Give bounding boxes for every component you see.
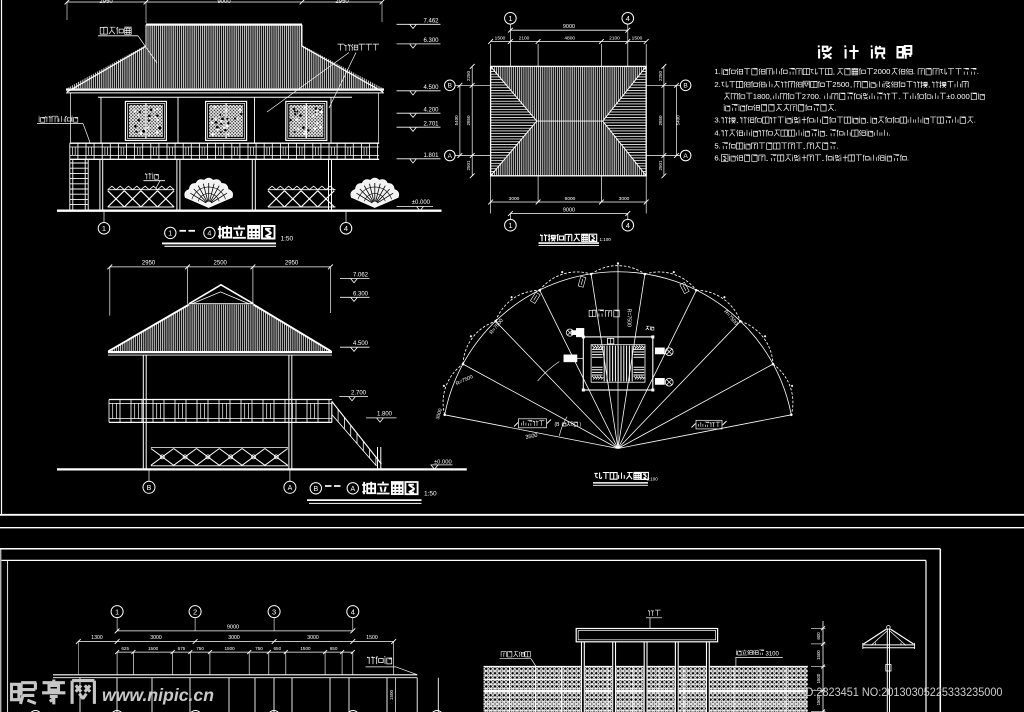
svg-text:B: B (147, 485, 152, 492)
svg-text:1:50: 1:50 (424, 491, 437, 498)
svg-text:2950: 2950 (335, 0, 349, 5)
svg-text:ID:2823451 NO:2013030522533323: ID:2823451 NO:20130305225333235000 (803, 687, 1003, 699)
svg-text:9000: 9000 (227, 625, 239, 631)
svg-text:R=7500: R=7500 (626, 309, 632, 327)
svg-text:A: A (683, 153, 688, 160)
svg-text:2850: 2850 (658, 115, 663, 126)
svg-text:6.300: 6.300 (353, 291, 369, 297)
svg-text:5400: 5400 (676, 115, 681, 126)
svg-text:2700.: 2700. (802, 92, 821, 101)
svg-text:1500: 1500 (300, 646, 311, 651)
svg-text:.: . (974, 116, 976, 125)
svg-text:.: . (913, 67, 915, 76)
svg-text:4: 4 (351, 607, 355, 616)
svg-text:675: 675 (178, 646, 186, 651)
svg-text:1500: 1500 (816, 650, 821, 660)
svg-text:600: 600 (816, 632, 821, 640)
svg-text:7.462: 7.462 (423, 19, 439, 25)
svg-text:4: 4 (207, 229, 211, 238)
svg-text:1: 1 (508, 14, 512, 23)
svg-text:A: A (350, 486, 355, 493)
svg-text:B: B (313, 486, 318, 493)
svg-text:A: A (288, 485, 293, 492)
svg-text:(B: (B (555, 422, 561, 428)
svg-text:1:50: 1:50 (281, 236, 294, 243)
svg-text:2950: 2950 (99, 0, 113, 5)
svg-text:3000: 3000 (509, 196, 520, 202)
svg-text:4800: 4800 (564, 36, 575, 42)
svg-text:1:100: 1:100 (600, 237, 612, 242)
svg-text:2501: 2501 (466, 160, 471, 171)
svg-text:1.800: 1.800 (377, 412, 393, 418)
svg-text:.: . (836, 142, 838, 151)
svg-text:1500: 1500 (224, 646, 235, 651)
svg-text:1: 1 (115, 607, 119, 616)
svg-text:2850: 2850 (466, 115, 471, 126)
svg-text:2: 2 (193, 607, 197, 616)
svg-text:4.200: 4.200 (423, 107, 439, 113)
svg-text:1500: 1500 (495, 36, 506, 42)
svg-text:4.: 4. (714, 129, 720, 138)
svg-text:2250: 2250 (658, 70, 663, 81)
svg-text:750: 750 (196, 646, 204, 651)
svg-text:4.500: 4.500 (423, 85, 439, 91)
svg-text:2250: 2250 (466, 70, 471, 81)
svg-text:2950: 2950 (142, 261, 156, 267)
svg-text:5400: 5400 (454, 115, 459, 126)
svg-text:6.300: 6.300 (423, 38, 439, 44)
svg-text:1500: 1500 (148, 646, 159, 651)
svg-text:A: A (448, 153, 453, 160)
svg-text:650: 650 (273, 646, 281, 651)
svg-text:2100: 2100 (609, 36, 620, 42)
svg-text:9000: 9000 (217, 0, 231, 5)
svg-text:6000: 6000 (565, 196, 576, 202)
svg-text:9000: 9000 (563, 24, 575, 30)
svg-text:±0.000: ±0.000 (434, 459, 452, 465)
svg-text:3000: 3000 (619, 196, 630, 202)
svg-text:.: . (907, 154, 909, 163)
svg-text:1500: 1500 (816, 673, 821, 683)
svg-text:4: 4 (626, 221, 630, 230)
svg-text:1.801: 1.801 (423, 153, 439, 159)
svg-text:5.: 5. (714, 142, 720, 151)
svg-text:3: 3 (272, 607, 276, 616)
svg-text:650: 650 (330, 646, 338, 651)
svg-text:1:100: 1:100 (647, 477, 659, 482)
svg-text:1: 1 (168, 229, 172, 238)
svg-text:1500: 1500 (632, 36, 643, 42)
svg-text:±0.000: ±0.000 (412, 200, 431, 206)
svg-text:2950: 2950 (285, 261, 299, 267)
svg-text:2.: 2. (714, 80, 720, 89)
svg-text:4: 4 (344, 224, 348, 233)
svg-text:B: B (683, 83, 687, 90)
svg-text:3.: 3. (714, 116, 720, 125)
svg-text:9000: 9000 (563, 207, 575, 213)
svg-text:1800,: 1800, (753, 92, 772, 101)
svg-text:3000: 3000 (307, 635, 319, 641)
svg-text:±0.000: ±0.000 (946, 92, 969, 101)
svg-text:2501: 2501 (658, 160, 663, 171)
svg-text:.: . (888, 129, 890, 138)
svg-text:7.062: 7.062 (353, 273, 369, 279)
svg-text:625: 625 (121, 646, 129, 651)
svg-text:2500: 2500 (832, 80, 849, 89)
svg-text:.: . (835, 103, 837, 112)
svg-text:1500: 1500 (389, 689, 394, 700)
svg-text:1: 1 (102, 224, 106, 233)
svg-text:3000: 3000 (150, 635, 162, 641)
svg-text:B: B (448, 83, 452, 90)
svg-text:1300: 1300 (91, 635, 103, 641)
svg-text:4: 4 (626, 14, 630, 23)
svg-text:1500: 1500 (366, 635, 378, 641)
svg-text:3000: 3000 (228, 635, 240, 641)
svg-text:6.: 6. (714, 154, 720, 163)
svg-text:.: . (977, 67, 979, 76)
svg-text:1.: 1. (714, 67, 720, 76)
svg-text:4.500: 4.500 (353, 341, 369, 347)
svg-text:2.700: 2.700 (351, 391, 367, 397)
svg-text:1: 1 (508, 221, 512, 230)
svg-text:2500: 2500 (214, 261, 228, 267)
svg-text:2100: 2100 (519, 36, 530, 42)
svg-text:2.701: 2.701 (423, 121, 439, 127)
svg-text:2000: 2000 (873, 67, 890, 76)
svg-text:3100: 3100 (766, 652, 780, 658)
svg-text:750: 750 (255, 646, 263, 651)
svg-text:www.nipic.cn: www.nipic.cn (102, 685, 214, 705)
